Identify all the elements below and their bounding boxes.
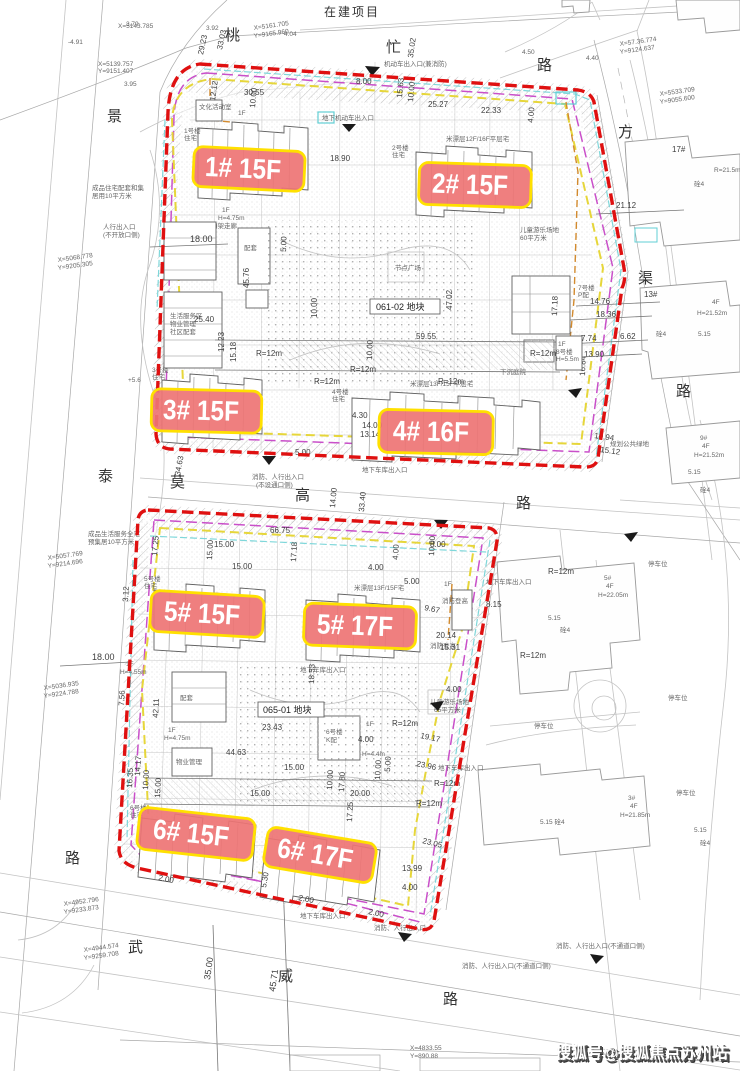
svg-text:25.27: 25.27 bbox=[428, 100, 449, 109]
svg-text:消防、人行出入口(不通道口侧): 消防、人行出入口(不通道口侧) bbox=[556, 941, 645, 950]
svg-text:8号楼: 8号楼 bbox=[556, 347, 573, 356]
svg-text:5.15: 5.15 bbox=[698, 331, 711, 338]
svg-text:-4.91: -4.91 bbox=[68, 39, 83, 46]
svg-text:5号楼: 5号楼 bbox=[144, 574, 161, 583]
svg-text:9#: 9# bbox=[700, 435, 708, 442]
svg-text:R=21.5m: R=21.5m bbox=[714, 167, 740, 174]
svg-text:R=12m: R=12m bbox=[530, 349, 556, 358]
svg-text:硂4: 硂4 bbox=[700, 485, 711, 494]
svg-text:地下车库出入口: 地下车库出入口 bbox=[300, 911, 346, 920]
svg-text:4.00: 4.00 bbox=[446, 685, 462, 694]
svg-text:10.00: 10.00 bbox=[373, 759, 383, 780]
svg-text:7.56: 7.56 bbox=[117, 690, 127, 707]
svg-text:配套: 配套 bbox=[180, 693, 194, 702]
svg-text:路: 路 bbox=[65, 850, 80, 867]
svg-text:60平方米: 60平方米 bbox=[520, 233, 547, 242]
svg-text:4.00: 4.00 bbox=[391, 544, 401, 561]
svg-text:R=12m: R=12m bbox=[392, 719, 418, 728]
svg-text:33.40: 33.40 bbox=[357, 491, 368, 512]
svg-text:5.15: 5.15 bbox=[694, 827, 707, 834]
svg-text:3#: 3# bbox=[628, 795, 636, 802]
svg-text:物业管理: 物业管理 bbox=[170, 319, 197, 328]
svg-text:5.15 硂4: 5.15 硂4 bbox=[540, 817, 565, 826]
svg-text:4.00: 4.00 bbox=[368, 563, 384, 572]
svg-text:渠: 渠 bbox=[638, 270, 653, 287]
svg-text:忙: 忙 bbox=[386, 39, 401, 56]
svg-text:方: 方 bbox=[618, 124, 633, 141]
svg-text:H=22.05m: H=22.05m bbox=[598, 592, 628, 599]
svg-text:住宅: 住宅 bbox=[392, 150, 406, 159]
svg-text:4.40: 4.40 bbox=[586, 55, 599, 62]
svg-text:15.00: 15.00 bbox=[153, 777, 163, 798]
svg-text:15.00: 15.00 bbox=[214, 540, 235, 549]
svg-text:X=5139.757: X=5139.757 bbox=[98, 61, 134, 68]
svg-text:18.00: 18.00 bbox=[190, 234, 213, 244]
svg-text:H=21.52m: H=21.52m bbox=[697, 310, 727, 317]
svg-text:4F: 4F bbox=[606, 583, 614, 590]
svg-text:5.00: 5.00 bbox=[383, 756, 393, 773]
svg-text:44.63: 44.63 bbox=[226, 748, 247, 757]
svg-text:15.00: 15.00 bbox=[284, 763, 305, 772]
svg-text:R=12m: R=12m bbox=[416, 799, 442, 808]
svg-text:5.00: 5.00 bbox=[279, 236, 289, 252]
svg-text:地下机动车出入口: 地下机动车出入口 bbox=[322, 113, 374, 122]
svg-text:H=21.85m: H=21.85m bbox=[620, 812, 650, 819]
svg-text:20.00: 20.00 bbox=[350, 789, 371, 798]
svg-text:4F: 4F bbox=[630, 803, 638, 810]
svg-text:路: 路 bbox=[537, 57, 552, 74]
svg-text:居用10平方米: 居用10平方米 bbox=[92, 191, 132, 200]
svg-text:13#: 13# bbox=[644, 290, 658, 299]
svg-text:15.00: 15.00 bbox=[250, 789, 271, 798]
svg-text:5# 17F: 5# 17F bbox=[316, 608, 393, 642]
svg-text:4# 16F: 4# 16F bbox=[393, 415, 470, 448]
svg-text:42.11: 42.11 bbox=[151, 698, 161, 718]
svg-text:18.53: 18.53 bbox=[307, 663, 317, 684]
svg-text:米漂层12F/16F平层宅: 米漂层12F/16F平层宅 bbox=[446, 134, 510, 143]
svg-text:米漂层13F/15F宅: 米漂层13F/15F宅 bbox=[354, 583, 405, 592]
svg-text:地下车库出入口: 地下车库出入口 bbox=[486, 577, 532, 586]
svg-text:1F: 1F bbox=[168, 727, 176, 734]
svg-text:20.14: 20.14 bbox=[436, 631, 457, 640]
svg-text:配套: 配套 bbox=[244, 243, 258, 252]
svg-text:061-02 地块: 061-02 地块 bbox=[376, 301, 425, 312]
svg-text:R=12m: R=12m bbox=[350, 365, 376, 374]
svg-text:1号楼: 1号楼 bbox=[184, 126, 201, 135]
svg-text:17#: 17# bbox=[672, 145, 686, 154]
svg-text:4.50: 4.50 bbox=[522, 49, 535, 56]
svg-text:15.31: 15.31 bbox=[440, 643, 461, 652]
svg-text:路: 路 bbox=[516, 495, 531, 512]
svg-text:5# 15F: 5# 15F bbox=[163, 595, 241, 630]
svg-text:2号楼: 2号楼 bbox=[392, 143, 409, 152]
svg-text:文化活动室: 文化活动室 bbox=[199, 102, 232, 111]
svg-text:14.00: 14.00 bbox=[328, 487, 339, 508]
svg-text:45.76: 45.76 bbox=[242, 267, 251, 288]
svg-text:21.12: 21.12 bbox=[616, 201, 637, 210]
svg-text:硂4: 硂4 bbox=[694, 179, 705, 188]
svg-text:47.02: 47.02 bbox=[445, 289, 454, 310]
svg-text:25.40: 25.40 bbox=[194, 315, 215, 324]
svg-text:P配: P配 bbox=[578, 291, 589, 299]
svg-text:武: 武 bbox=[128, 939, 143, 956]
svg-text:10.00: 10.00 bbox=[325, 769, 335, 790]
svg-text:节点广场: 节点广场 bbox=[395, 263, 422, 272]
svg-text:社区配套: 社区配套 bbox=[170, 327, 197, 336]
svg-text:地下车库出入口: 地下车库出入口 bbox=[362, 465, 408, 474]
svg-text:17.80: 17.80 bbox=[337, 771, 347, 792]
svg-text:住宅: 住宅 bbox=[144, 581, 158, 590]
svg-text:4F: 4F bbox=[702, 443, 710, 450]
svg-text:R=12m: R=12m bbox=[438, 377, 464, 386]
svg-text:R=12m: R=12m bbox=[520, 651, 546, 660]
svg-text:H=4.55m: H=4.55m bbox=[120, 669, 147, 676]
svg-text:景: 景 bbox=[107, 108, 122, 125]
svg-text:(不开放口侧): (不开放口侧) bbox=[103, 230, 140, 239]
svg-text:10.00: 10.00 bbox=[141, 769, 151, 790]
svg-text:065-01 地块: 065-01 地块 bbox=[263, 704, 312, 715]
svg-text:停车位: 停车位 bbox=[648, 559, 668, 568]
svg-text:硂4: 硂4 bbox=[656, 329, 667, 338]
svg-text:1F: 1F bbox=[222, 207, 230, 214]
svg-text:路: 路 bbox=[676, 383, 691, 400]
svg-text:17.18: 17.18 bbox=[289, 541, 299, 562]
svg-text:4号楼: 4号楼 bbox=[332, 387, 349, 396]
svg-text:消防、人行出入口(不通道口侧): 消防、人行出入口(不通道口侧) bbox=[462, 961, 551, 970]
svg-text:17.25: 17.25 bbox=[345, 801, 355, 822]
svg-text:13.99: 13.99 bbox=[402, 864, 423, 873]
svg-text:22.33: 22.33 bbox=[481, 106, 502, 115]
svg-text:4F: 4F bbox=[712, 299, 720, 306]
svg-text:15.63: 15.63 bbox=[395, 77, 406, 98]
svg-text:59.55: 59.55 bbox=[416, 332, 437, 341]
svg-text:R=12m: R=12m bbox=[314, 377, 340, 386]
svg-text:住宅: 住宅 bbox=[332, 394, 346, 403]
svg-text:Y=9151.407: Y=9151.407 bbox=[98, 68, 134, 75]
svg-text:66.75: 66.75 bbox=[270, 526, 291, 535]
svg-text:住宅: 住宅 bbox=[184, 133, 198, 142]
svg-text:成品生活服务全宅: 成品生活服务全宅 bbox=[88, 529, 141, 538]
svg-text:硂4: 硂4 bbox=[560, 625, 571, 634]
svg-text:3.95: 3.95 bbox=[124, 81, 137, 88]
svg-text:4.00: 4.00 bbox=[402, 883, 418, 892]
svg-text:6.62: 6.62 bbox=[620, 332, 636, 341]
svg-text:10.00: 10.00 bbox=[248, 87, 259, 108]
svg-text:+5.6: +5.6 bbox=[128, 377, 141, 384]
svg-text:H=21.52m: H=21.52m bbox=[694, 452, 724, 459]
svg-text:3.12: 3.12 bbox=[121, 586, 131, 603]
svg-text:15.00: 15.00 bbox=[205, 539, 215, 560]
svg-text:4.00: 4.00 bbox=[526, 106, 536, 123]
svg-text:18.00: 18.00 bbox=[92, 652, 115, 662]
svg-text:5#: 5# bbox=[604, 575, 612, 582]
svg-text:停车位: 停车位 bbox=[534, 721, 554, 730]
svg-text:成品住宅配套和集: 成品住宅配套和集 bbox=[92, 183, 145, 192]
svg-text:17.25: 17.25 bbox=[150, 535, 161, 556]
svg-text:H=5.5m: H=5.5m bbox=[556, 356, 579, 363]
svg-text:1F: 1F bbox=[238, 110, 246, 117]
svg-text:4.00: 4.00 bbox=[358, 735, 374, 744]
svg-text:1# 15F: 1# 15F bbox=[204, 151, 281, 186]
svg-text:23.43: 23.43 bbox=[262, 723, 283, 732]
svg-text:在建项目: 在建项目 bbox=[324, 5, 380, 19]
svg-text:12.23: 12.23 bbox=[217, 331, 226, 352]
svg-text:3# 15F: 3# 15F bbox=[163, 394, 240, 427]
svg-text:15.00: 15.00 bbox=[232, 562, 253, 571]
svg-text:10.00: 10.00 bbox=[310, 297, 319, 318]
svg-text:7号楼: 7号楼 bbox=[578, 283, 595, 292]
svg-text:15.18: 15.18 bbox=[229, 341, 238, 362]
svg-text:机动车出入口(兼消防): 机动车出入口(兼消防) bbox=[384, 59, 447, 68]
svg-text:路: 路 bbox=[443, 991, 458, 1008]
svg-text:2# 15F: 2# 15F bbox=[432, 168, 509, 201]
svg-text:莫: 莫 bbox=[170, 474, 185, 491]
svg-text:13.90: 13.90 bbox=[584, 350, 605, 359]
svg-text:10.00: 10.00 bbox=[427, 535, 437, 556]
svg-text:人行出入口: 人行出入口 bbox=[103, 222, 136, 231]
svg-text:R=12m: R=12m bbox=[548, 567, 574, 576]
svg-text:停车位: 停车位 bbox=[668, 693, 688, 702]
svg-text:1F: 1F bbox=[558, 341, 566, 348]
svg-text:17.18: 17.18 bbox=[550, 295, 560, 316]
svg-text:物业管理: 物业管理 bbox=[176, 757, 203, 766]
svg-text:5.15: 5.15 bbox=[548, 615, 561, 622]
svg-text:3.92: 3.92 bbox=[206, 25, 219, 32]
svg-text:消防、人行出入口: 消防、人行出入口 bbox=[252, 472, 304, 481]
svg-text:H=4.75m: H=4.75m bbox=[218, 215, 245, 222]
svg-text:7.74: 7.74 bbox=[581, 334, 597, 343]
svg-text:消防登高: 消防登高 bbox=[442, 596, 469, 605]
svg-text:停车位: 停车位 bbox=[676, 788, 696, 797]
svg-text:10.00: 10.00 bbox=[406, 81, 417, 102]
svg-text:威: 威 bbox=[278, 968, 293, 985]
svg-text:1F: 1F bbox=[444, 581, 452, 588]
svg-text:5.15: 5.15 bbox=[688, 469, 701, 476]
svg-text:18.90: 18.90 bbox=[330, 154, 351, 163]
svg-text:H=4.75m: H=4.75m bbox=[164, 735, 191, 742]
svg-text:儿童游乐场地: 儿童游乐场地 bbox=[520, 225, 560, 234]
svg-text:Y=890.88: Y=890.88 bbox=[410, 1053, 438, 1060]
svg-text:(不设通口侧): (不设通口侧) bbox=[256, 480, 293, 489]
svg-text:8.00: 8.00 bbox=[356, 77, 372, 86]
svg-text:R=12m: R=12m bbox=[256, 349, 282, 358]
svg-text:10.00: 10.00 bbox=[365, 339, 375, 360]
svg-text:高: 高 bbox=[295, 487, 310, 504]
svg-text:搜狐号@搜狐焦点苏州站: 搜狐号@搜狐焦点苏州站 bbox=[556, 1042, 728, 1062]
svg-text:预集居10平方米: 预集居10平方米 bbox=[88, 537, 135, 546]
svg-text:桃: 桃 bbox=[225, 27, 240, 44]
svg-text:4.30: 4.30 bbox=[352, 411, 368, 420]
svg-text:X=5143.785: X=5143.785 bbox=[118, 23, 154, 30]
svg-text:泰: 泰 bbox=[98, 468, 113, 485]
svg-text:X=4833.55: X=4833.55 bbox=[410, 1045, 442, 1052]
svg-text:5.00: 5.00 bbox=[404, 577, 420, 586]
svg-text:硂4: 硂4 bbox=[700, 838, 711, 847]
